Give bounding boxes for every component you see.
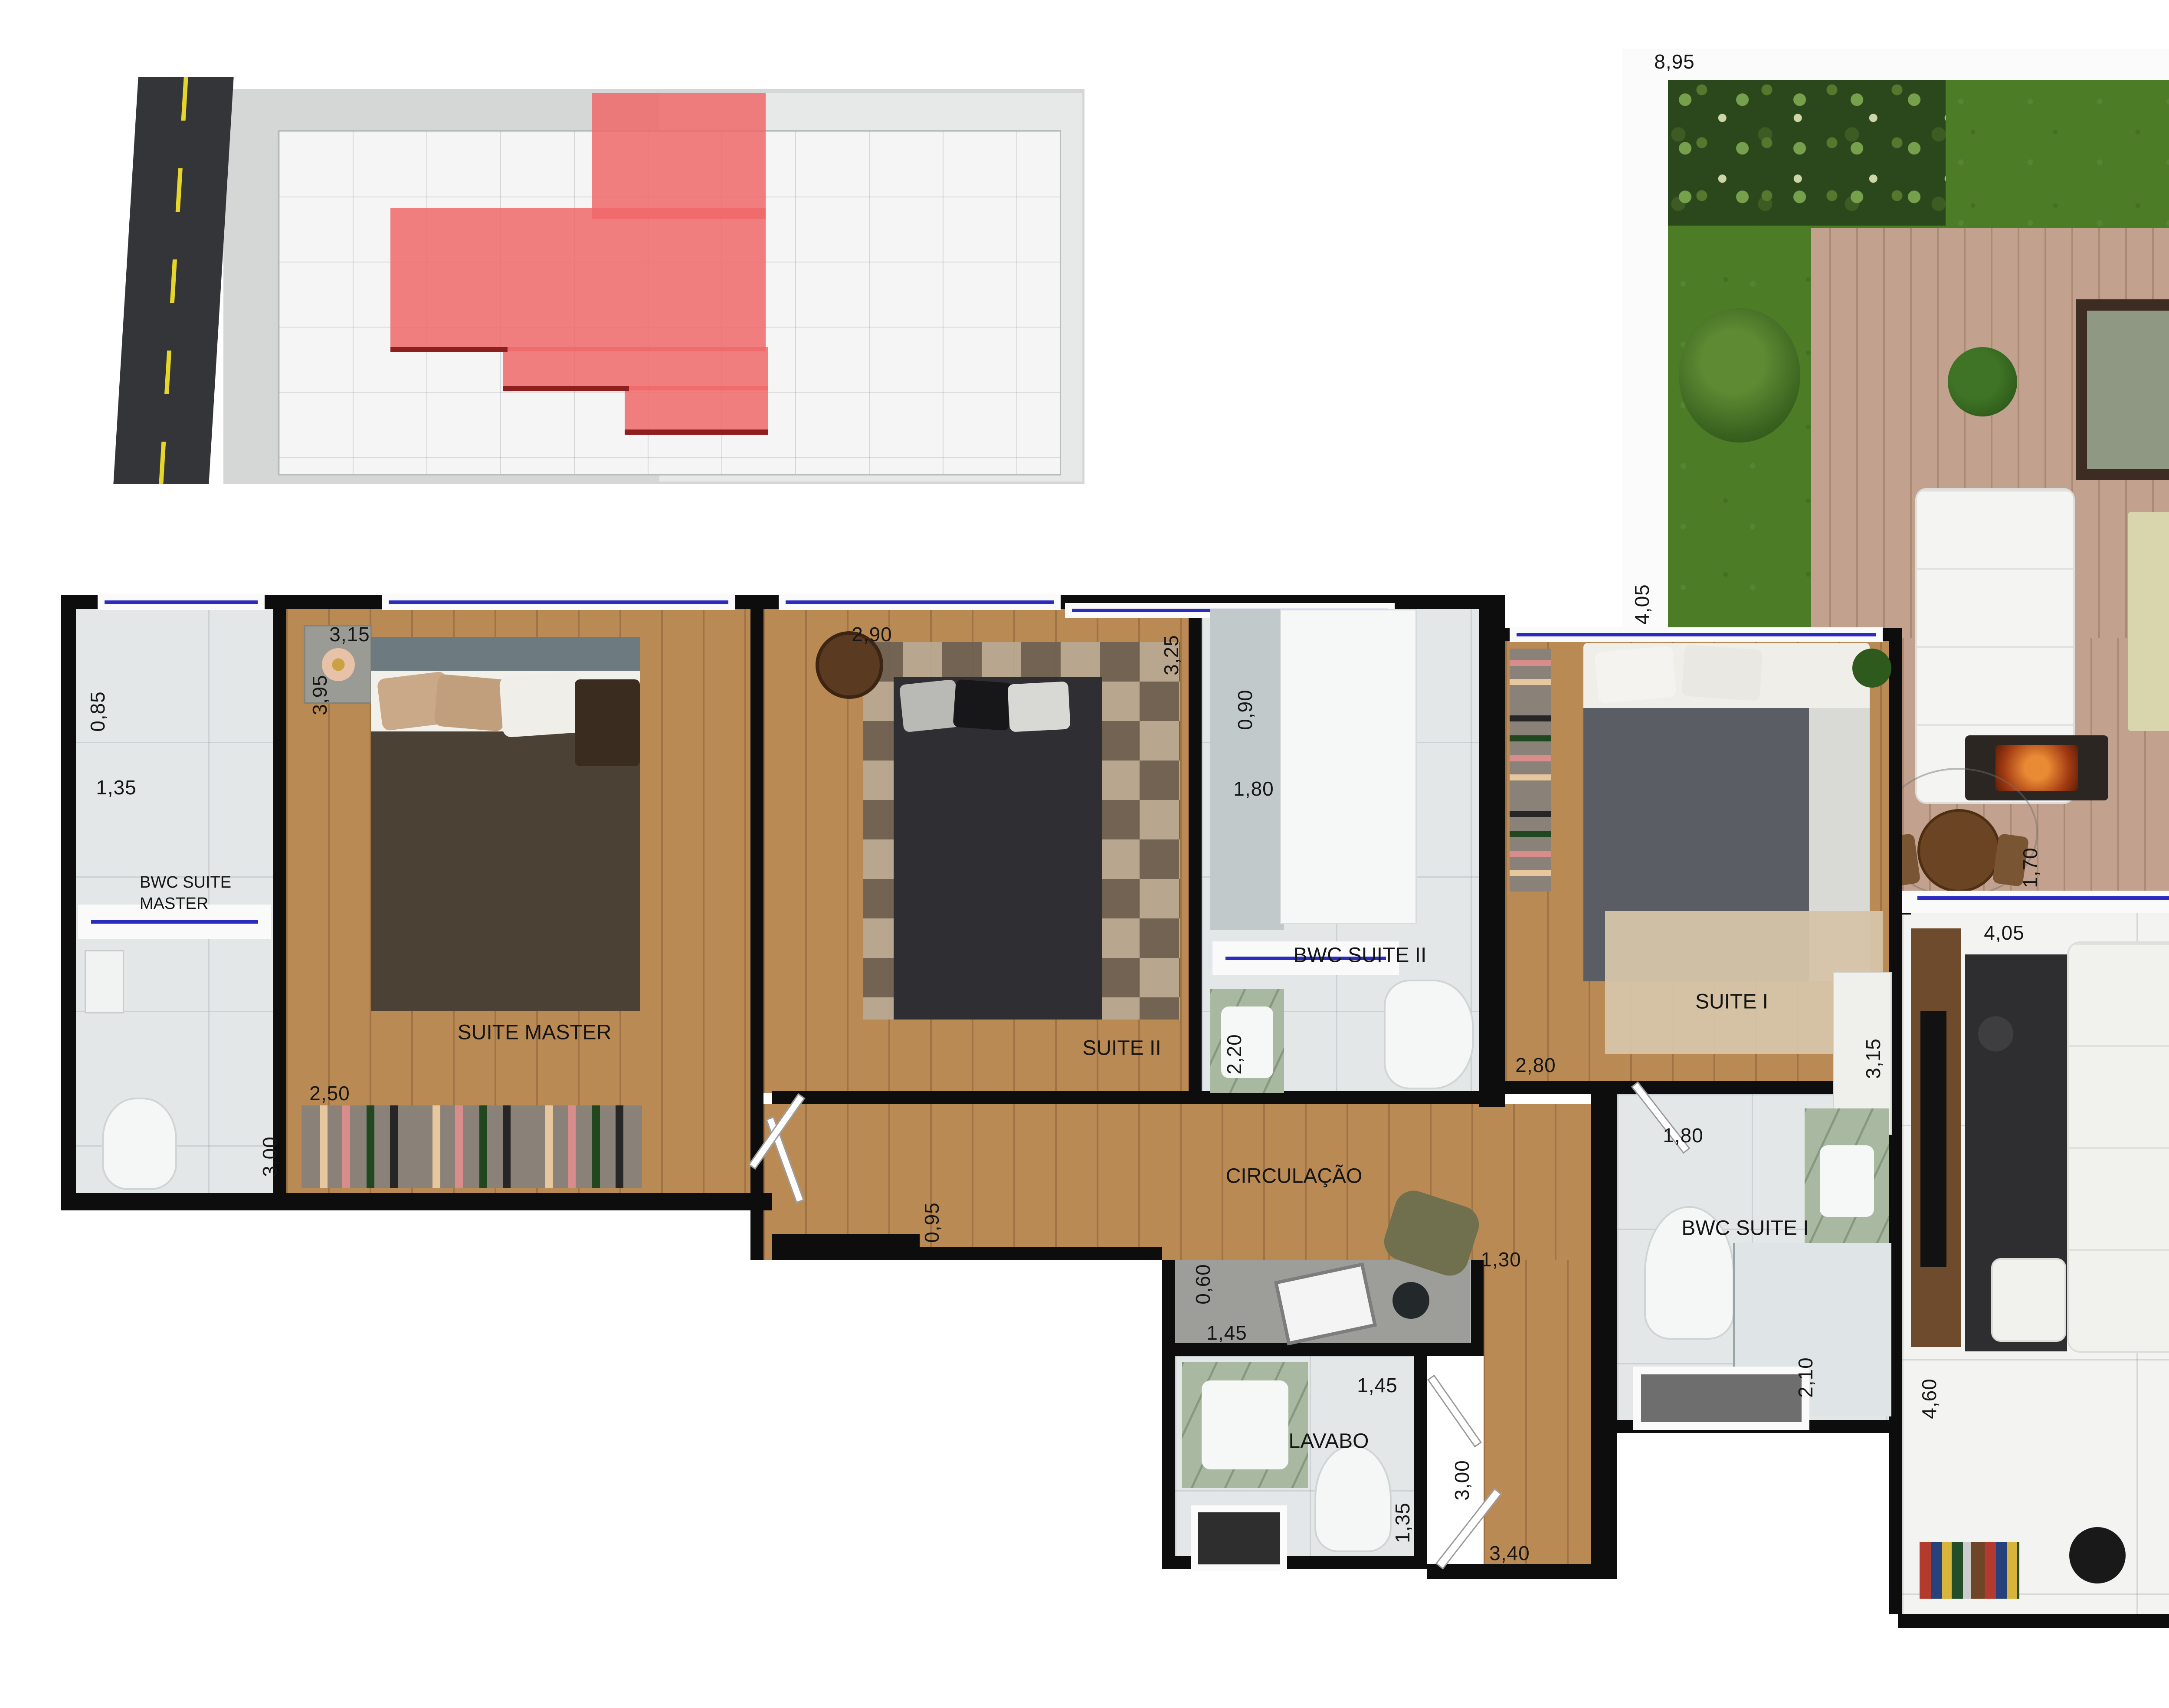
dim-hall-w: 1,30 — [1481, 1248, 1521, 1271]
floorplan-page: { "rooms": { "bwc_master": "BWC SUITE MA… — [0, 0, 2169, 1708]
room-label-lavabo: LAVABO — [1289, 1429, 1369, 1453]
dim-living-w: 4,05 — [1984, 921, 2025, 944]
room-label-bwc2: BWC SUITE II — [1294, 944, 1427, 967]
dim-entry-w: 3,40 — [1489, 1541, 1530, 1565]
room-label-suite1: SUITE I — [1695, 990, 1768, 1014]
dim-garden-width: 8,95 — [1654, 50, 1695, 73]
room-label-suite2: SUITE II — [1082, 1036, 1161, 1060]
dim-bwc1-w: 1,80 — [1663, 1124, 1704, 1147]
dim-suite1-h: 3,15 — [1861, 1038, 1885, 1079]
dim-office-d: 0,60 — [1191, 1264, 1215, 1305]
dim-lavabo-h: 1,35 — [1391, 1502, 1414, 1543]
dim-suite2-w: 2,90 — [852, 623, 892, 646]
dim-suite2-h: 3,25 — [1160, 635, 1183, 675]
sofa — [2067, 941, 2169, 1353]
dim-office-w: 1,45 — [1206, 1321, 1247, 1344]
credenza-books — [1920, 1542, 2019, 1599]
dim-garden-depth: 4,05 — [1630, 584, 1654, 625]
room-label-bwc-master: BWC SUITE MASTER — [140, 872, 257, 915]
furniture-living — [0, 0, 2169, 1708]
room-label-circulacao: CIRCULAÇÃO — [1226, 1164, 1363, 1188]
side-table — [2069, 1527, 2126, 1583]
dim-bwc2-w: 1,80 — [1233, 777, 1274, 800]
room-label-suite-master: SUITE MASTER — [458, 1021, 612, 1045]
dim-living-h: 4,60 — [1917, 1378, 1941, 1419]
tv-screen — [1920, 1011, 1946, 1267]
dim-lavabo-w: 1,45 — [1357, 1374, 1398, 1397]
dim-bwc-master-w: 1,35 — [96, 776, 137, 799]
dim-suite-master-h: 3,95 — [308, 675, 331, 715]
dim-suite1-w: 2,80 — [1515, 1053, 1556, 1077]
dim-hall-h: 3,00 — [1450, 1460, 1474, 1501]
room-label-bwc1: BWC SUITE I — [1681, 1216, 1809, 1240]
dim-suite-master-w: 3,15 — [329, 623, 370, 646]
dim-bwc-master-shower-w: 0,85 — [86, 691, 109, 732]
dim-bwc2-shower-w: 0,90 — [1233, 689, 1257, 730]
dim-circulacao-w: 0,95 — [920, 1202, 944, 1243]
dim-deck-h: 1,70 — [2018, 847, 2042, 888]
dim-bwc1-h: 2,10 — [1794, 1357, 1817, 1398]
dim-bwc2-h: 2,20 — [1222, 1034, 1246, 1075]
tv-panel — [1911, 928, 1961, 1347]
dim-closet-master-w: 2,50 — [309, 1082, 350, 1105]
dim-bwc-master-h: 3,00 — [258, 1136, 282, 1177]
ottoman — [1991, 1258, 2066, 1342]
